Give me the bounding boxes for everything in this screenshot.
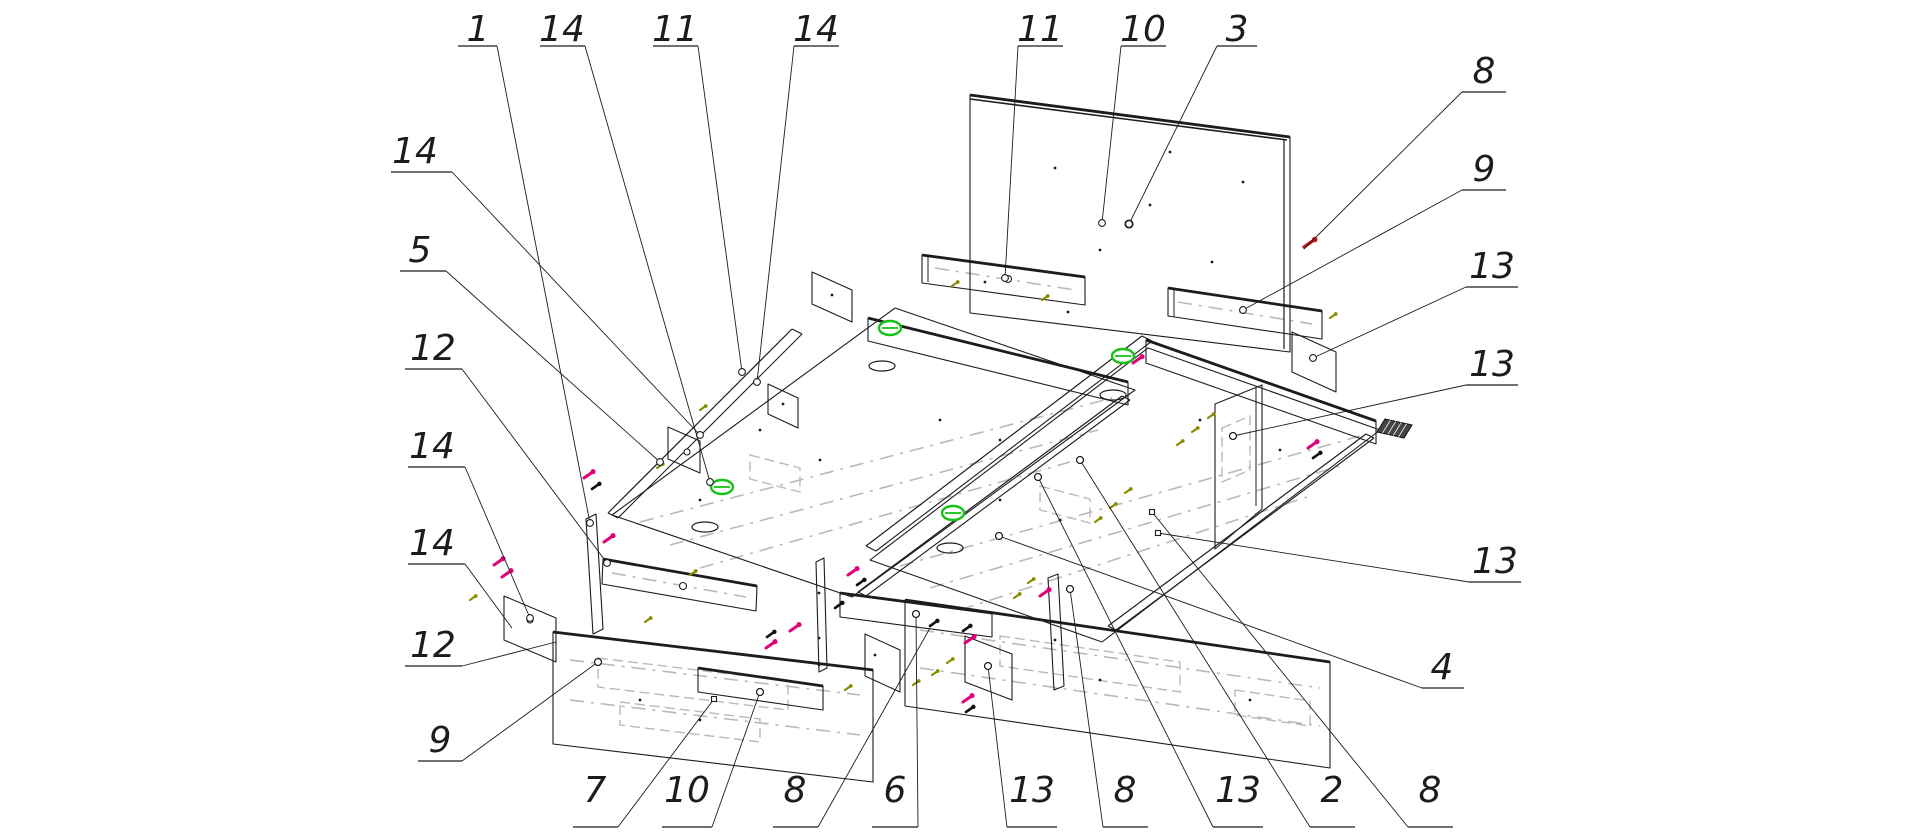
callout-1-leader: [497, 46, 590, 523]
left-box-left-rail-cap: [792, 329, 802, 334]
left-box-left-rail: [618, 334, 802, 518]
callout-label-14: 14: [409, 523, 455, 564]
callout-13-endpoint: [1230, 433, 1237, 440]
callout-12-leader: [462, 642, 556, 666]
screw-olive-head: [1129, 487, 1133, 491]
screw-black-head: [862, 578, 866, 582]
bracket-b: [768, 384, 798, 428]
hole-mark: [680, 583, 687, 590]
back-rail-left-heavy-edge: [922, 255, 1085, 277]
back-panel-heavy-edge: [970, 95, 1290, 137]
oval-cutout: [1100, 390, 1126, 400]
screw-red-head: [1312, 237, 1317, 242]
callout-8-endpoint: [1150, 510, 1155, 515]
callout-label-1: 1: [467, 9, 490, 50]
callout-label-10: 10: [664, 770, 710, 811]
screw-olive-head: [1196, 426, 1200, 430]
callout-label-13: 13: [1215, 770, 1261, 811]
hidden-detail-line: [930, 466, 1340, 588]
callout-2-endpoint: [1077, 457, 1084, 464]
callout-13-endpoint: [985, 663, 992, 670]
callout-10-leader: [712, 692, 760, 827]
callout-label-7: 7: [584, 770, 607, 811]
screw-olive-head: [849, 684, 853, 688]
detail-dot: [639, 699, 642, 702]
screw-olive-head: [1334, 312, 1338, 316]
callout-11-endpoint: [1002, 275, 1009, 282]
left-drawer-front: [553, 632, 873, 782]
right-back-right-rail: [1146, 340, 1376, 444]
callout-13-endpoint: [1156, 531, 1161, 536]
detail-dot: [818, 592, 821, 595]
detail-dot: [818, 637, 821, 640]
callout-13-leader: [1233, 385, 1466, 436]
screw-olive-head: [1181, 439, 1185, 443]
screw-black-head: [968, 624, 972, 628]
screw-black-head: [935, 619, 939, 623]
callout-13-leader: [988, 666, 1007, 827]
left-back-right-rail: [868, 318, 1128, 405]
callout-label-12: 12: [410, 625, 456, 666]
callout-14-endpoint: [707, 479, 714, 486]
callout-13-endpoint: [1310, 355, 1317, 362]
callout-label-9: 9: [429, 720, 452, 761]
callout-10-endpoint: [757, 689, 764, 696]
callout-14-endpoint: [697, 432, 704, 439]
screw-magenta-head: [1314, 439, 1319, 444]
callout-label-14: 14: [392, 131, 438, 172]
callout-label-6: 6: [884, 770, 907, 811]
callout-13-leader: [1158, 533, 1469, 582]
callout-11-leader: [698, 46, 742, 372]
detail-dot: [999, 499, 1002, 502]
screw-magenta-head: [1139, 354, 1144, 359]
screw-olive-head: [917, 679, 921, 683]
callout-label-10: 10: [1120, 9, 1166, 50]
callout-3-leader: [1129, 46, 1217, 224]
callout-3-endpoint: [1126, 221, 1133, 228]
detail-dot: [999, 439, 1002, 442]
right-box-front-right-strip: [1116, 438, 1374, 630]
callout-12-leader: [462, 369, 607, 563]
callout-1-endpoint: [587, 520, 594, 527]
right-top-panel: [870, 348, 1380, 642]
screw-magenta-head: [590, 469, 595, 474]
callout-10-endpoint: [1099, 220, 1106, 227]
screw-olive-head: [704, 404, 708, 408]
detail-dot: [1279, 449, 1282, 452]
screw-black-head: [971, 705, 975, 709]
detail-dot: [1211, 261, 1214, 264]
callout-label-13: 13: [1009, 770, 1055, 811]
callout-8-leader: [1304, 92, 1462, 249]
detail-dot: [1249, 699, 1252, 702]
technical-drawing-canvas: 1141114111031451214141297108613813288913…: [0, 0, 1920, 835]
callout-label-14: 14: [539, 9, 585, 50]
detail-dot: [1099, 249, 1102, 252]
drawer-slide-gray-rect: [1040, 486, 1090, 523]
detail-dot: [1054, 639, 1057, 642]
detail-dot: [1099, 679, 1102, 682]
right-mid-bracket: [865, 634, 900, 692]
left-front-rail-heavy-edge: [603, 559, 757, 586]
screw-magenta-head: [1046, 587, 1051, 592]
callout-label-11: 11: [652, 9, 698, 50]
callout-12-endpoint: [604, 560, 611, 567]
hidden-detail-line: [612, 573, 746, 597]
bracket-c: [812, 272, 852, 322]
callout-label-8: 8: [784, 770, 807, 811]
hidden-detail-line: [570, 660, 860, 695]
screw-olive-head: [1099, 516, 1103, 520]
callout-label-2: 2: [1321, 770, 1344, 811]
detail-dot: [1054, 167, 1057, 170]
drawer-slide-gray-rect: [1222, 416, 1250, 482]
hidden-detail-line: [570, 700, 860, 735]
callout-label-14: 14: [793, 9, 839, 50]
screw-olive-head: [1018, 592, 1022, 596]
hatched-plate: [1377, 419, 1412, 438]
drawer-slide-gray-rect: [1235, 690, 1310, 726]
callout-label-12: 12: [410, 328, 456, 369]
oval-cutout: [869, 361, 895, 371]
detail-dot: [782, 403, 785, 406]
hidden-detail-line: [900, 436, 1360, 566]
callout-label-5: 5: [409, 230, 432, 271]
detail-dot: [1067, 311, 1070, 314]
callout-label-8: 8: [1473, 51, 1496, 92]
callout-label-14: 14: [409, 426, 455, 467]
detail-dot: [984, 281, 987, 284]
callout-14-endpoint: [527, 615, 534, 622]
callout-14-leader: [585, 46, 710, 482]
drawer-slide-gray-rect: [750, 455, 800, 492]
detail-dot: [939, 419, 942, 422]
left-small-plate: [504, 596, 556, 662]
left-box-front-right-strip: [858, 396, 1122, 592]
callout-6-leader: [916, 614, 918, 827]
screw-olive-head: [694, 569, 698, 573]
right-box-left-rail: [866, 336, 1142, 546]
screw-magenta-head: [610, 533, 615, 538]
screw-olive-head: [1114, 502, 1118, 506]
screw-magenta-head: [969, 693, 974, 698]
detail-dot: [759, 429, 762, 432]
callout-13-leader: [1313, 287, 1466, 358]
screw-olive-head: [936, 669, 940, 673]
callout-14-endpoint: [754, 379, 761, 386]
exploded-furniture-assembly-diagram: 1141114111031451214141297108613813288913…: [0, 0, 1920, 835]
panel-thickness-edge: [970, 99, 1287, 140]
detail-dot: [1149, 204, 1152, 207]
screw-olive-head: [951, 657, 955, 661]
detail-dot: [1199, 419, 1202, 422]
screw-magenta-head: [971, 634, 976, 639]
callout-9-leader: [462, 662, 598, 761]
bracket-a: [668, 427, 700, 473]
hidden-detail-line: [670, 430, 1098, 545]
callout-9-leader: [1243, 190, 1462, 310]
left-box-front-right-strip: [866, 400, 1130, 596]
right-back-right-rail-heavy-edge: [1146, 340, 1376, 421]
callout-4-endpoint: [996, 533, 1003, 540]
callout-label-13: 13: [1472, 541, 1518, 582]
callout-7-endpoint: [712, 697, 717, 702]
screw-black-head: [1318, 451, 1322, 455]
detail-dot: [874, 654, 877, 657]
callout-8-leader: [818, 628, 930, 827]
drawer-slide-gray-rect: [1000, 636, 1180, 692]
detail-dot: [818, 664, 821, 667]
callout-6-endpoint: [913, 611, 920, 618]
right-box-left-rail: [876, 341, 1152, 551]
detail-dot: [819, 459, 822, 462]
callout-label-11: 11: [1017, 9, 1063, 50]
callout-label-9: 9: [1473, 149, 1496, 190]
detail-dot: [1169, 151, 1172, 154]
callout-11-leader: [1005, 46, 1018, 278]
screw-black-head: [772, 630, 776, 634]
left-box-left-rail: [608, 329, 792, 513]
right-floating-bracket: [1292, 332, 1336, 392]
right-box-front-right-strip: [1108, 434, 1366, 626]
callout-13-endpoint: [1035, 474, 1042, 481]
screw-olive-head: [1212, 412, 1216, 416]
screw-olive-head: [474, 594, 478, 598]
callout-8-leader: [1070, 589, 1103, 827]
hole-mark: [684, 449, 690, 455]
screw-magenta-head: [796, 622, 801, 627]
callout-label-13: 13: [1469, 344, 1515, 385]
callout-14-leader: [452, 172, 700, 435]
screw-black-head: [597, 482, 601, 486]
callout-5-endpoint: [657, 459, 664, 466]
detail-dot: [699, 499, 702, 502]
screw-magenta-head: [854, 566, 859, 571]
screw-olive-head: [1046, 294, 1050, 298]
right-box-left-rail-cap: [866, 546, 876, 551]
callout-9-endpoint: [1240, 307, 1247, 314]
callout-8-endpoint: [1067, 586, 1074, 593]
screw-olive-head: [1032, 577, 1036, 581]
screw-olive-head: [956, 280, 960, 284]
callout-10-leader: [1102, 46, 1121, 223]
detail-dot: [831, 294, 834, 297]
screw-magenta-head: [772, 639, 777, 644]
callout-label-8: 8: [1419, 770, 1442, 811]
screw-black-head: [840, 601, 844, 605]
hidden-detail-line: [920, 630, 1320, 688]
callout-9-endpoint: [595, 659, 602, 666]
callout-5-leader: [446, 271, 660, 462]
callout-11-endpoint: [739, 369, 746, 376]
screw-olive-head: [649, 616, 653, 620]
detail-dot: [1242, 181, 1245, 184]
callout-label-4: 4: [1431, 647, 1454, 688]
callout-label-3: 3: [1226, 9, 1249, 50]
left-vert-divider: [586, 514, 603, 634]
callout-label-13: 13: [1469, 246, 1515, 287]
left-vert-edge: [816, 558, 827, 672]
hidden-detail-line: [640, 398, 1112, 522]
callout-14-leader: [757, 46, 794, 382]
oval-cutout: [692, 522, 718, 532]
callout-label-8: 8: [1114, 770, 1137, 811]
